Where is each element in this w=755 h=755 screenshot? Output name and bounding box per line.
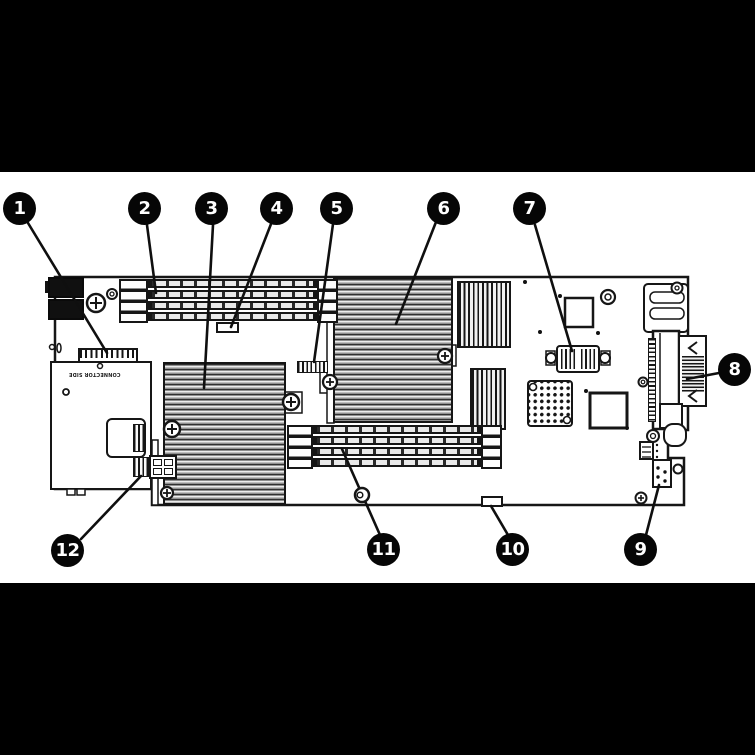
screw-icon [87, 294, 105, 312]
screw-icon [323, 375, 337, 389]
leader-line-1 [28, 223, 107, 353]
leader-line-8 [687, 373, 719, 379]
leader-line-3 [204, 225, 213, 388]
callout-5: 5 [320, 192, 353, 225]
callout-10: 10 [496, 533, 529, 566]
callout-3: 3 [195, 192, 228, 225]
callout-2: 2 [128, 192, 161, 225]
leader-line-12 [81, 476, 141, 539]
leader-line-5 [314, 224, 333, 362]
screws [87, 294, 647, 504]
screw-icon [164, 421, 180, 437]
callout-9: 9 [624, 533, 657, 566]
leader-line-6 [396, 222, 436, 324]
screw-icon [283, 394, 299, 410]
callout-12: 12 [51, 534, 84, 567]
callout-6: 6 [427, 192, 460, 225]
leader-line-2 [147, 225, 156, 293]
leader-line-4 [231, 224, 271, 327]
callout-11: 11 [367, 533, 400, 566]
callout-7: 7 [513, 192, 546, 225]
screw-icon [438, 349, 452, 363]
annotation-layer [0, 0, 755, 755]
leader-lines [28, 222, 719, 539]
diagram-canvas: CONNECTOR SIDE [0, 0, 755, 755]
leader-line-10 [491, 506, 508, 535]
callout-1: 1 [3, 192, 36, 225]
leader-line-9 [646, 485, 659, 535]
callout-8: 8 [718, 353, 751, 386]
screw-icon [636, 493, 647, 504]
screw-icon [161, 487, 173, 499]
plug-chevrons [689, 342, 697, 402]
callout-4: 4 [260, 192, 293, 225]
